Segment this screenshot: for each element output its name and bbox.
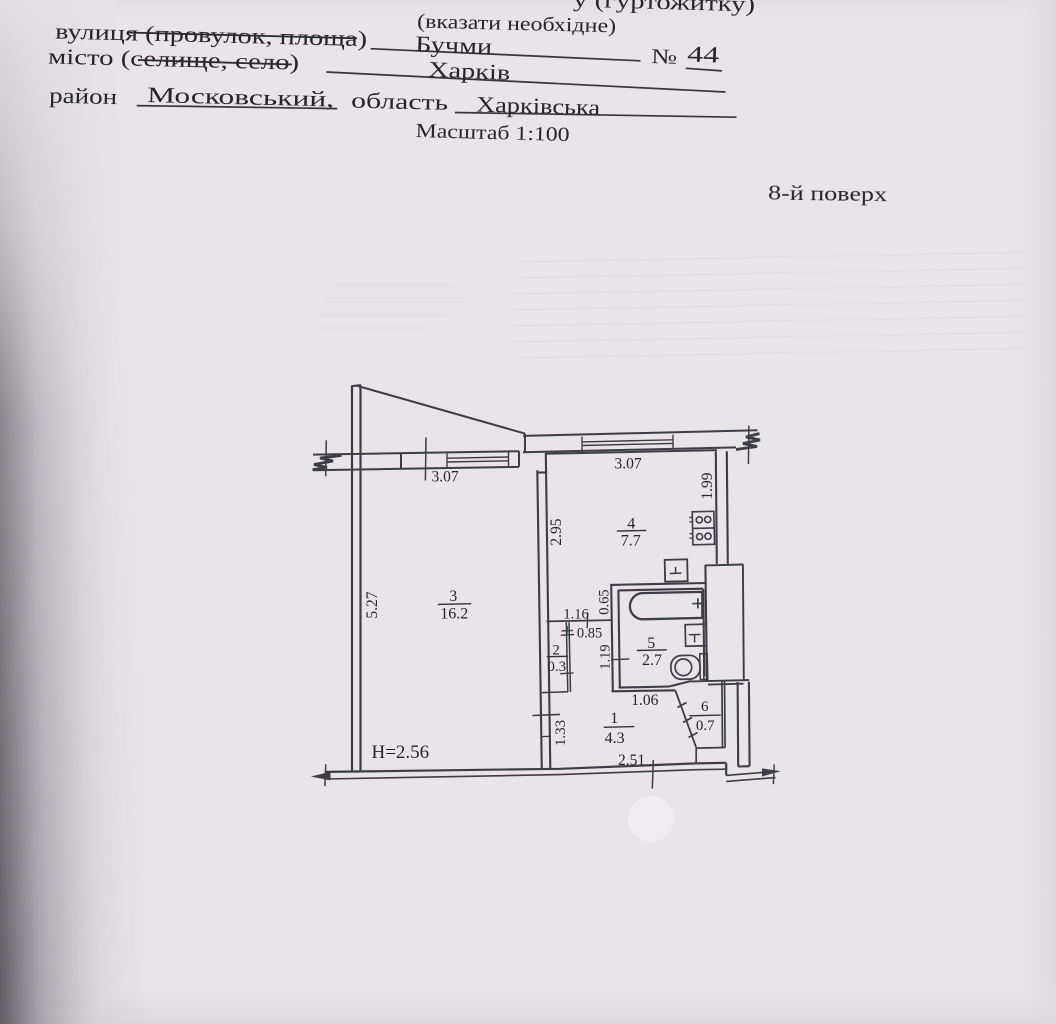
svg-text:H=2.56: H=2.56 xyxy=(372,742,430,763)
svg-text:0.3: 0.3 xyxy=(547,659,566,675)
svg-text:1.19: 1.19 xyxy=(597,644,613,669)
svg-text:0.7: 0.7 xyxy=(696,718,715,734)
svg-text:6: 6 xyxy=(701,699,709,715)
svg-text:3.07: 3.07 xyxy=(614,456,641,473)
svg-text:44: 44 xyxy=(687,42,720,68)
svg-text:7.7: 7.7 xyxy=(621,533,641,550)
svg-text:Харківська: Харківська xyxy=(476,92,601,120)
svg-text:Масштаб 1:100: Масштаб 1:100 xyxy=(415,120,570,146)
svg-text:район: район xyxy=(49,83,118,110)
svg-text:Бучми: Бучми xyxy=(415,32,493,60)
svg-text:5: 5 xyxy=(647,635,655,652)
svg-text:16.2: 16.2 xyxy=(440,606,468,623)
svg-text:4.3: 4.3 xyxy=(605,730,625,747)
svg-text:Харків: Харків xyxy=(428,57,511,86)
svg-text:1.99: 1.99 xyxy=(699,472,716,499)
svg-text:№: № xyxy=(651,44,678,69)
svg-text:8-й поверх: 8-й поверх xyxy=(768,181,888,207)
svg-text:0.65: 0.65 xyxy=(596,589,612,614)
svg-text:область: область xyxy=(351,88,449,115)
svg-text:0.85: 0.85 xyxy=(577,625,602,641)
svg-text:2.95: 2.95 xyxy=(548,518,565,545)
svg-text:2.51: 2.51 xyxy=(618,752,645,769)
svg-text:3: 3 xyxy=(449,588,457,605)
svg-text:3.07: 3.07 xyxy=(431,469,458,486)
svg-text:1.16: 1.16 xyxy=(563,606,588,622)
svg-text:2.7: 2.7 xyxy=(642,652,662,669)
svg-text:1.33: 1.33 xyxy=(553,720,569,746)
svg-text:5.27: 5.27 xyxy=(364,591,381,618)
svg-text:1: 1 xyxy=(610,710,618,727)
svg-text:1.06: 1.06 xyxy=(631,692,658,709)
